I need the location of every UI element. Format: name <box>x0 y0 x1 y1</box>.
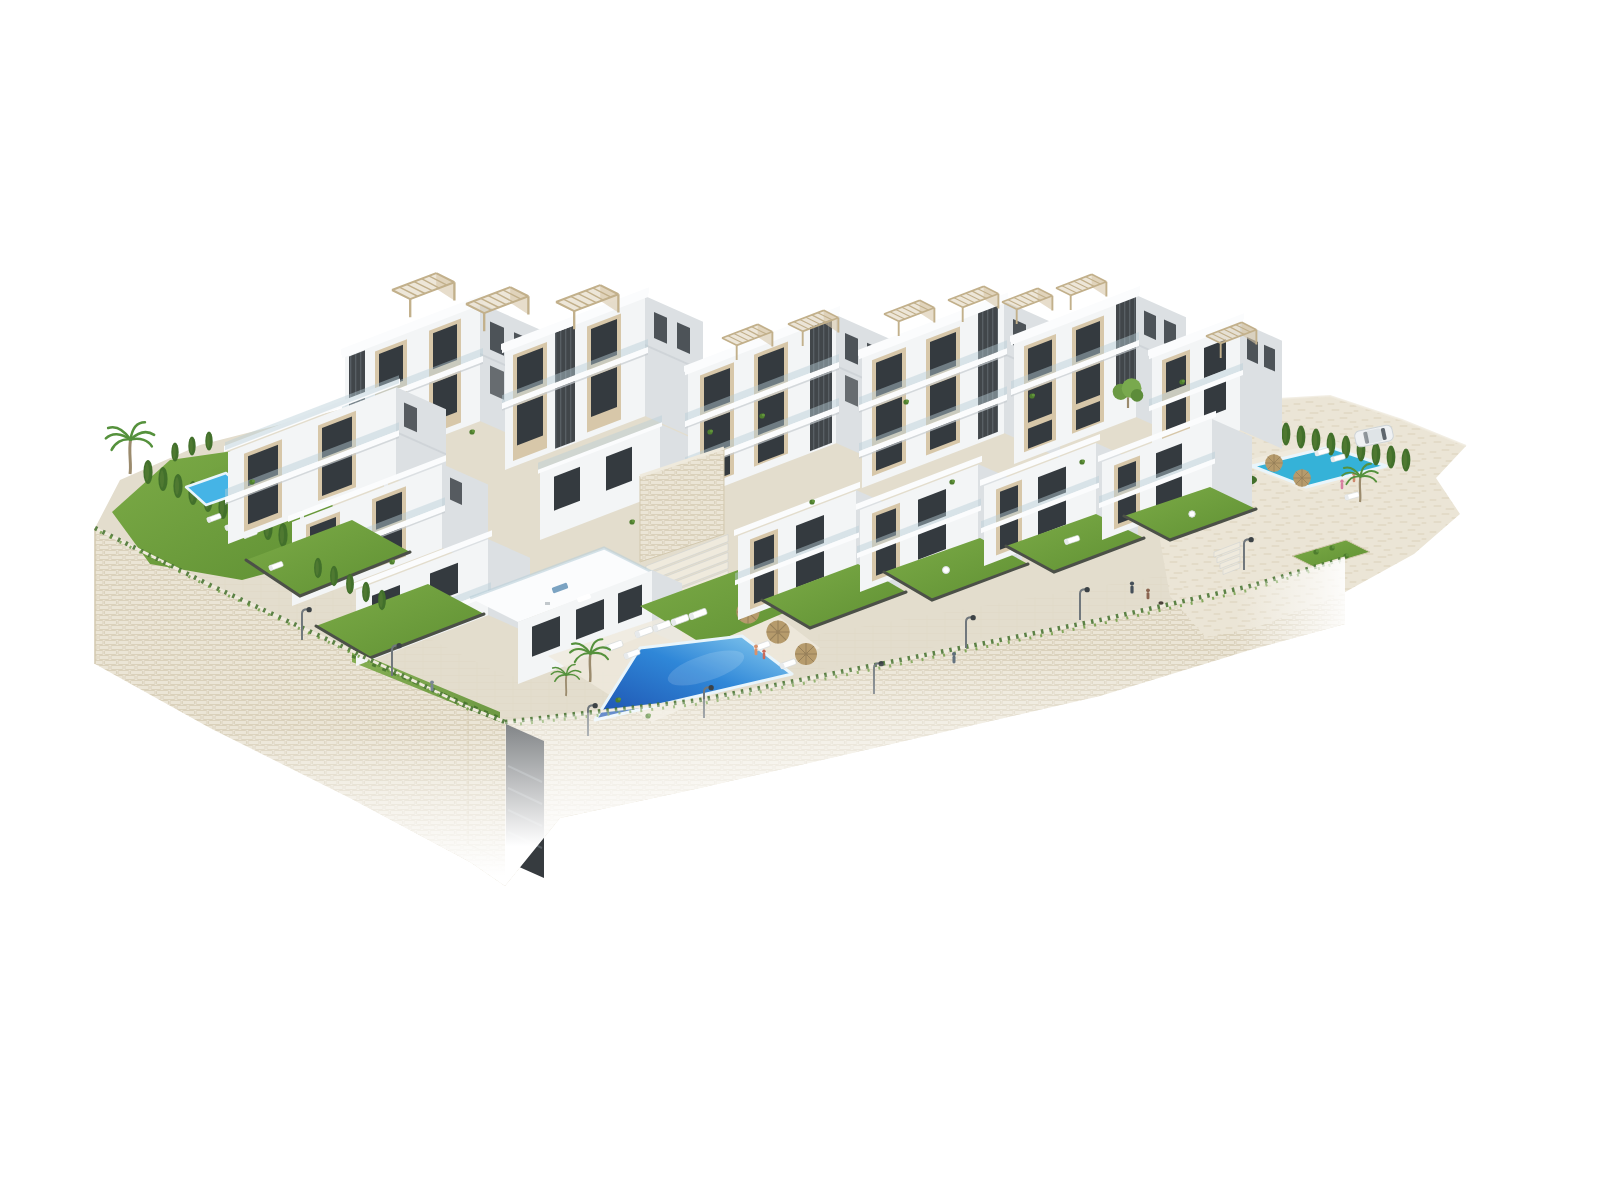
dog-figure <box>1158 601 1163 604</box>
garden-table <box>1189 511 1195 517</box>
bather-figure <box>754 644 758 655</box>
render-canvas <box>0 0 1600 1200</box>
straw-parasol <box>795 643 817 665</box>
straw-parasol <box>1265 454 1283 472</box>
pedestrian-figure <box>1130 581 1134 593</box>
bather-figure <box>762 650 765 660</box>
pedestrian-figure <box>1146 588 1150 599</box>
straw-parasol <box>766 620 789 643</box>
bather-figure <box>1340 480 1343 490</box>
architectural-render <box>0 0 1600 1200</box>
straw-parasol <box>1293 469 1311 487</box>
garden-table <box>943 567 950 574</box>
